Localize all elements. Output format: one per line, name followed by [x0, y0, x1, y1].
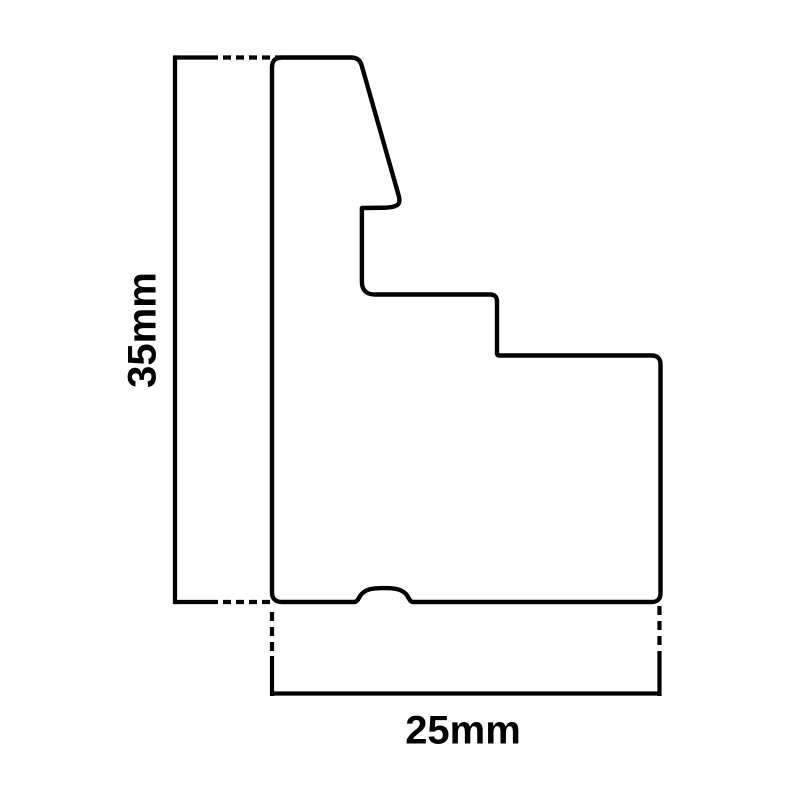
svg-text:25mm: 25mm: [405, 709, 521, 753]
svg-text:35mm: 35mm: [121, 272, 165, 388]
